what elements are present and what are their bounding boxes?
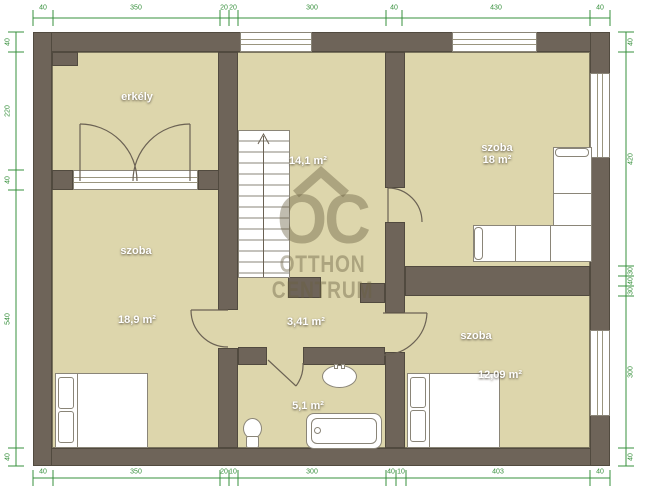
dimension-label: 40 (628, 38, 635, 46)
floor-plan: OC OTTHON CENTRUM erkély szoba 18,9 m² 1… (0, 0, 645, 500)
dimension-label: 40 (628, 277, 635, 285)
dimension-label: 300 (628, 366, 635, 378)
dimension-label: 30 (628, 267, 635, 275)
dimension-label: 420 (628, 153, 635, 165)
dimension-label: 30 (628, 287, 635, 295)
dim-labels-right: 4042030403030040 (0, 0, 645, 500)
dimension-label: 40 (628, 453, 635, 461)
